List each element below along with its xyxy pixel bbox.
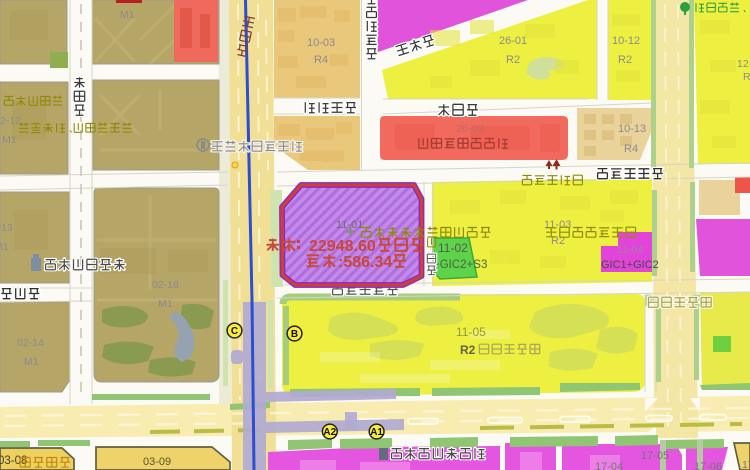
svg-text:17-05: 17-05 [641, 450, 669, 462]
svg-text:11-03: 11-03 [544, 219, 571, 231]
svg-text:M1: M1 [0, 241, 9, 253]
svg-text:03-09: 03-09 [143, 456, 171, 468]
svg-text:03-08: 03-08 [0, 455, 27, 467]
svg-text:A2: A2 [323, 427, 336, 438]
svg-text:+GIC2+S3: +GIC2+S3 [433, 259, 487, 271]
svg-text::586.34: :586.34 [338, 254, 392, 271]
svg-text:17-04: 17-04 [595, 461, 623, 470]
svg-text:R4: R4 [314, 54, 328, 66]
svg-text:B: B [291, 329, 298, 340]
svg-text:R2: R2 [506, 54, 520, 66]
svg-text:10-12: 10-12 [612, 35, 640, 47]
svg-text:A1: A1 [370, 427, 383, 438]
svg-text:M1: M1 [158, 298, 173, 310]
svg-text:10-03: 10-03 [307, 37, 335, 49]
svg-text:22948.60: 22948.60 [309, 238, 376, 255]
svg-text:10-13: 10-13 [618, 123, 646, 135]
svg-text:2-12: 2-12 [0, 115, 21, 127]
svg-text:17-06: 17-06 [694, 461, 722, 470]
svg-text:R: R [743, 71, 750, 83]
svg-text:11-04: 11-04 [617, 244, 643, 256]
svg-text:12-: 12- [737, 58, 750, 70]
svg-text:26-02: 26-02 [456, 123, 484, 135]
svg-text:R2: R2 [618, 54, 632, 66]
svg-text:R4: R4 [624, 143, 638, 155]
svg-text:11-05: 11-05 [456, 325, 486, 339]
svg-text:R2: R2 [460, 343, 476, 357]
svg-text:M1: M1 [2, 134, 17, 146]
svg-text:02-14: 02-14 [17, 337, 44, 349]
svg-text:17: 17 [742, 459, 750, 470]
svg-text:C: C [231, 326, 238, 337]
svg-text:02-13: 02-13 [0, 222, 13, 234]
svg-text:26-01: 26-01 [499, 35, 527, 47]
svg-text:M1: M1 [120, 9, 135, 21]
svg-text:GIC1+GIC2: GIC1+GIC2 [601, 259, 659, 271]
svg-text:M1: M1 [24, 356, 39, 368]
svg-text:02-18: 02-18 [152, 279, 179, 291]
svg-text:11-02: 11-02 [438, 241, 468, 255]
